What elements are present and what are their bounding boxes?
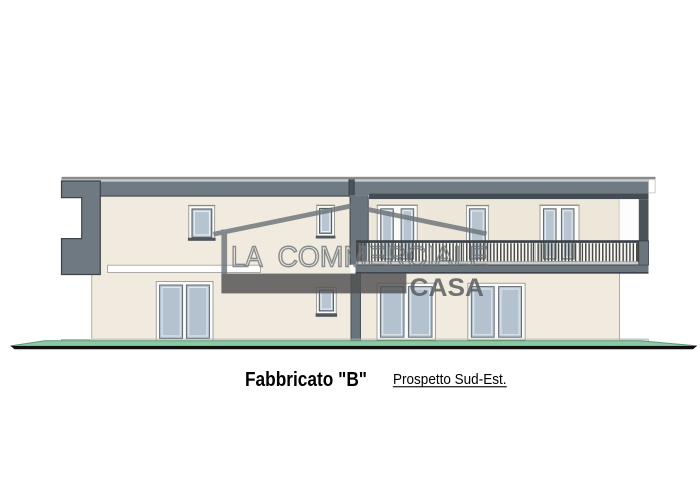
svg-text:CASA: CASA: [410, 275, 485, 302]
svg-text:Prospetto Sud-Est.: Prospetto Sud-Est.: [393, 371, 507, 388]
svg-text:COMMERCIALE: COMMERCIALE: [278, 242, 489, 274]
svg-text:Fabbricato "B": Fabbricato "B": [245, 369, 367, 391]
svg-text:LA: LA: [231, 242, 263, 274]
